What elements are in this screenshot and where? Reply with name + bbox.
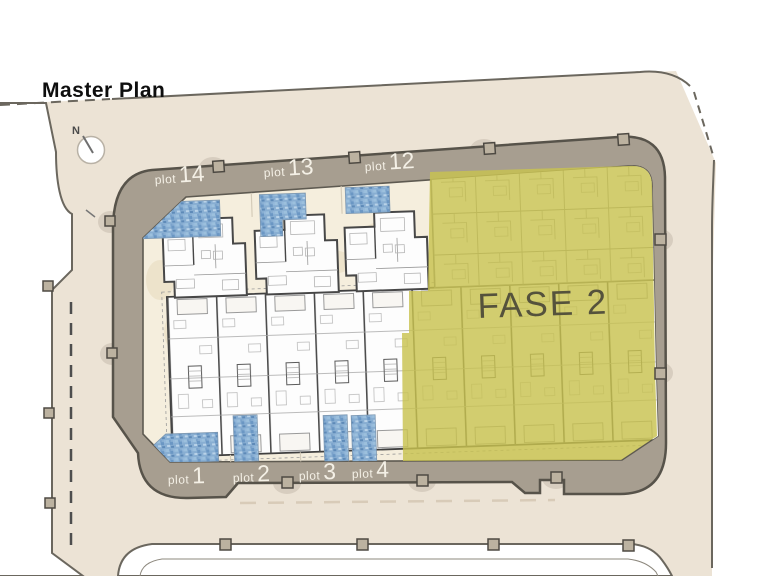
site-plan-drawing: plot14 plot13 plot12 plot1 plot2 plot3 p… <box>0 0 768 576</box>
north-label: N <box>72 125 80 137</box>
pool-plot2 <box>233 415 259 462</box>
master-plan-page: plot14 plot13 plot12 plot1 plot2 plot3 p… <box>0 0 768 576</box>
pool-plot4 <box>351 415 377 462</box>
pool-plot12 <box>345 186 390 214</box>
pool-plot3 <box>323 415 349 462</box>
page-title: Master Plan <box>42 79 165 102</box>
phase2-label: FASE 2 <box>477 282 609 326</box>
parcel-south <box>118 544 672 576</box>
